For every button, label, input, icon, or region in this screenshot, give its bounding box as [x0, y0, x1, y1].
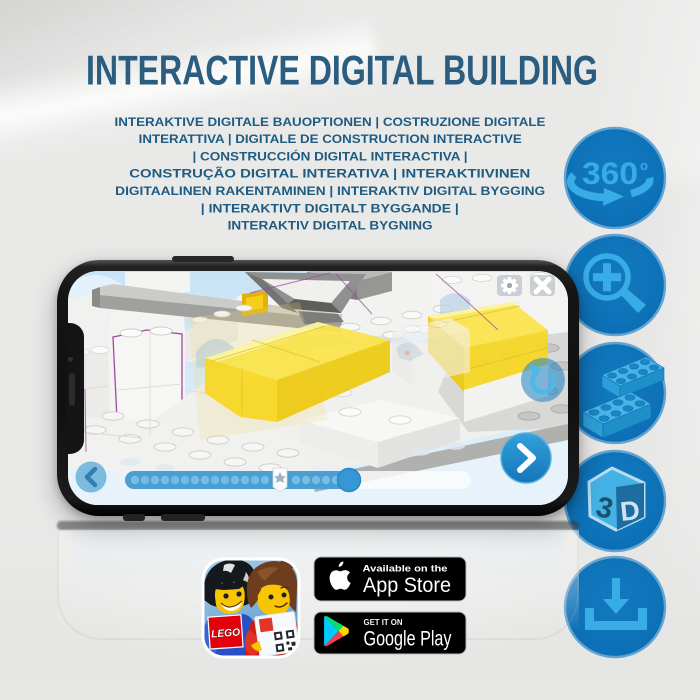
svg-text:DIGITAALINEN RAKENTAMINEN | IN: DIGITAALINEN RAKENTAMINEN | INTERAKTIV D…	[115, 184, 545, 198]
svg-text:GET IT ON: GET IT ON	[364, 617, 403, 627]
svg-text:D: D	[619, 495, 642, 527]
svg-text:CONSTRUÇÃO DIGITAL INTERATIVA: CONSTRUÇÃO DIGITAL INTERATIVA | INTERAKT…	[129, 166, 530, 181]
svg-text:LEGO: LEGO	[211, 626, 241, 640]
svg-text:App Store: App Store	[363, 573, 451, 597]
svg-text:| CONSTRUCCIÓN DIGITAL INTERAC: | CONSTRUCCIÓN DIGITAL INTERACTIVA |	[193, 148, 468, 163]
svg-text:Google Play: Google Play	[364, 627, 452, 651]
svg-text:o: o	[640, 158, 648, 173]
svg-text:INTERAKTIV DIGITAL BYGNING: INTERAKTIV DIGITAL BYGNING	[228, 219, 433, 233]
svg-text:INTERACTIVE DIGITAL BUILDING: INTERACTIVE DIGITAL BUILDING	[86, 47, 598, 94]
svg-text:INTERATTIVA | DIGITALE DE CONS: INTERATTIVA | DIGITALE DE CONSTRUCTION I…	[139, 132, 522, 146]
svg-text:360: 360	[582, 155, 638, 191]
svg-text:| INTERAKTIVT DIGITALT BYGGAND: | INTERAKTIVT DIGITALT BYGGANDE |	[201, 201, 459, 215]
svg-text:INTERAKTIVE DIGITALE BAUOPTION: INTERAKTIVE DIGITALE BAUOPTIONEN | COSTR…	[115, 115, 546, 129]
